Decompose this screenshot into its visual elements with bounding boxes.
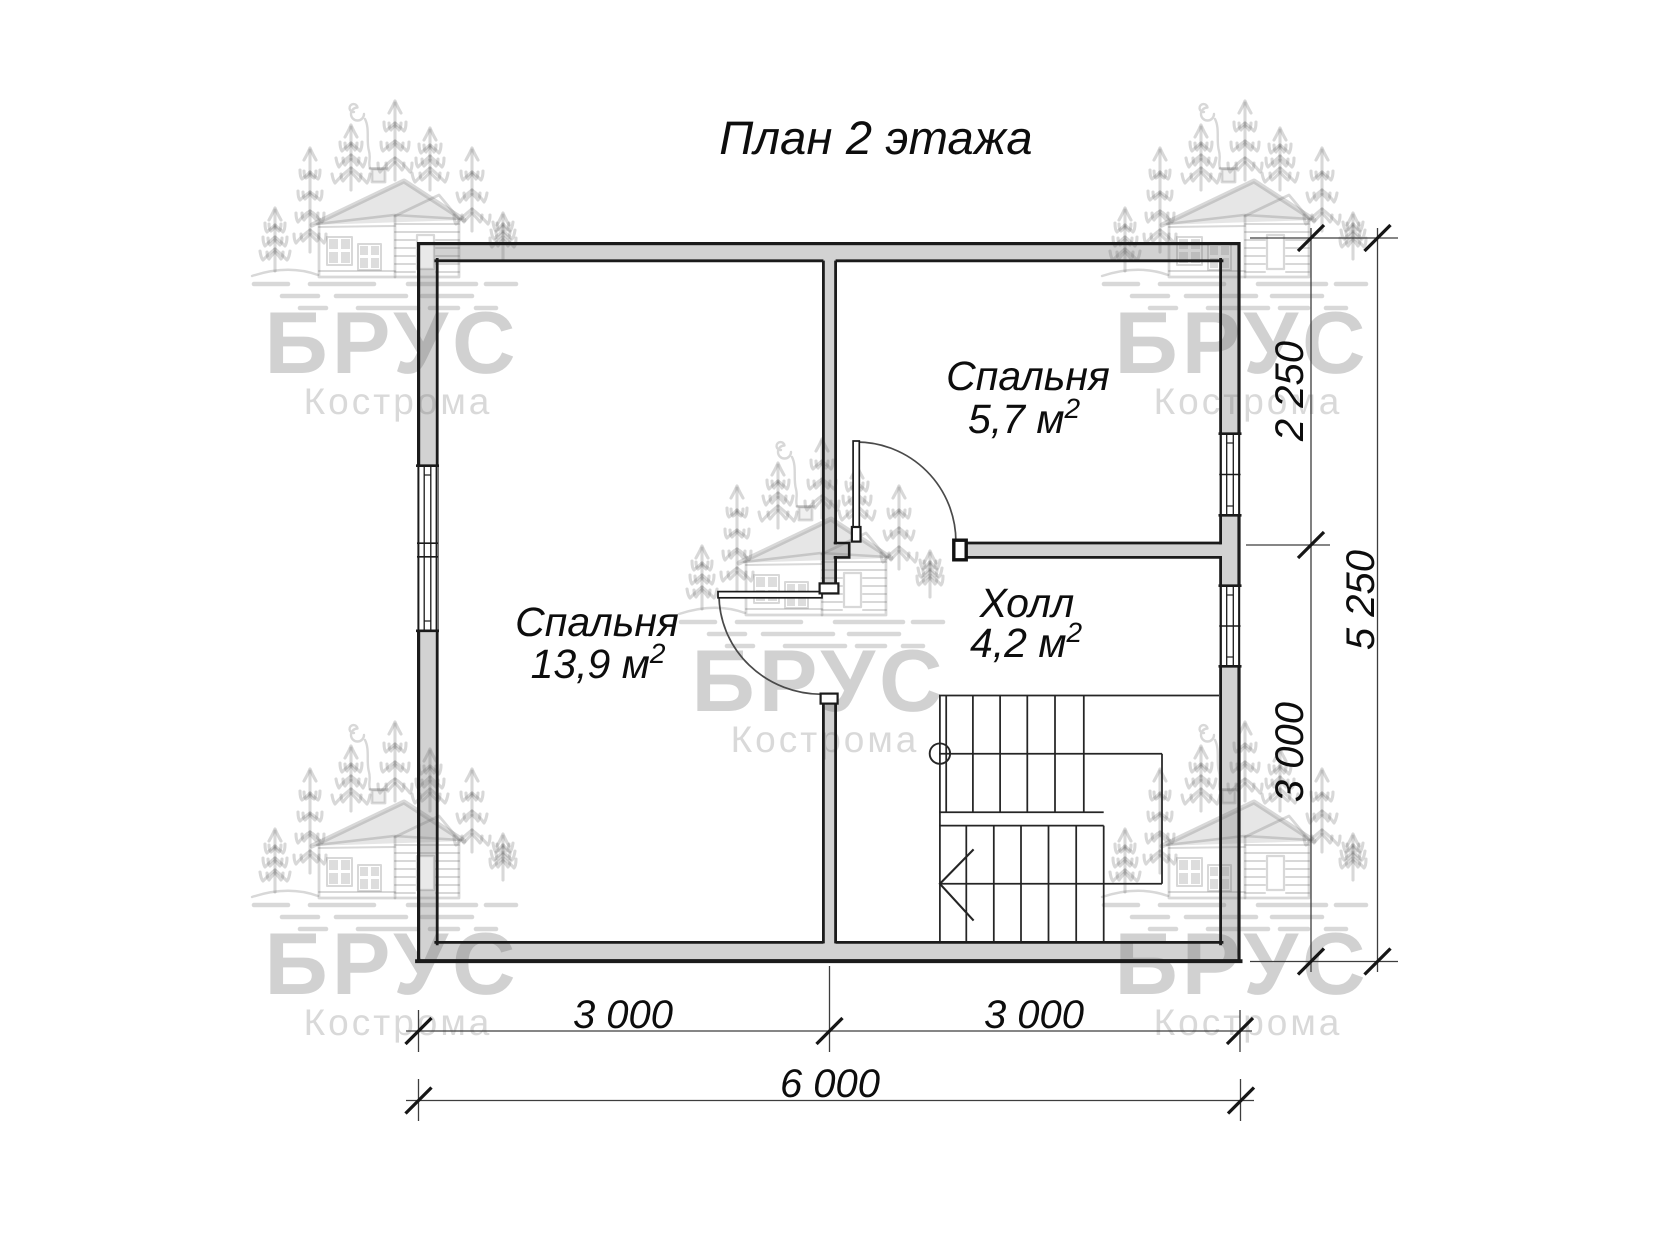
svg-text:2 250: 2 250: [1268, 341, 1312, 442]
svg-text:Спальня: Спальня: [946, 353, 1110, 399]
svg-text:5 250: 5 250: [1339, 550, 1383, 650]
svg-text:3 000: 3 000: [984, 993, 1084, 1037]
svg-text:5,7 м2: 5,7 м2: [968, 393, 1081, 442]
svg-text:6 000: 6 000: [780, 1062, 880, 1106]
svg-text:13,9 м2: 13,9 м2: [531, 638, 666, 687]
svg-text:3 000: 3 000: [1268, 702, 1312, 802]
svg-text:3 000: 3 000: [573, 993, 673, 1037]
svg-text:План 2 этажа: План 2 этажа: [719, 111, 1033, 164]
svg-text:4,2 м2: 4,2 м2: [970, 617, 1083, 666]
